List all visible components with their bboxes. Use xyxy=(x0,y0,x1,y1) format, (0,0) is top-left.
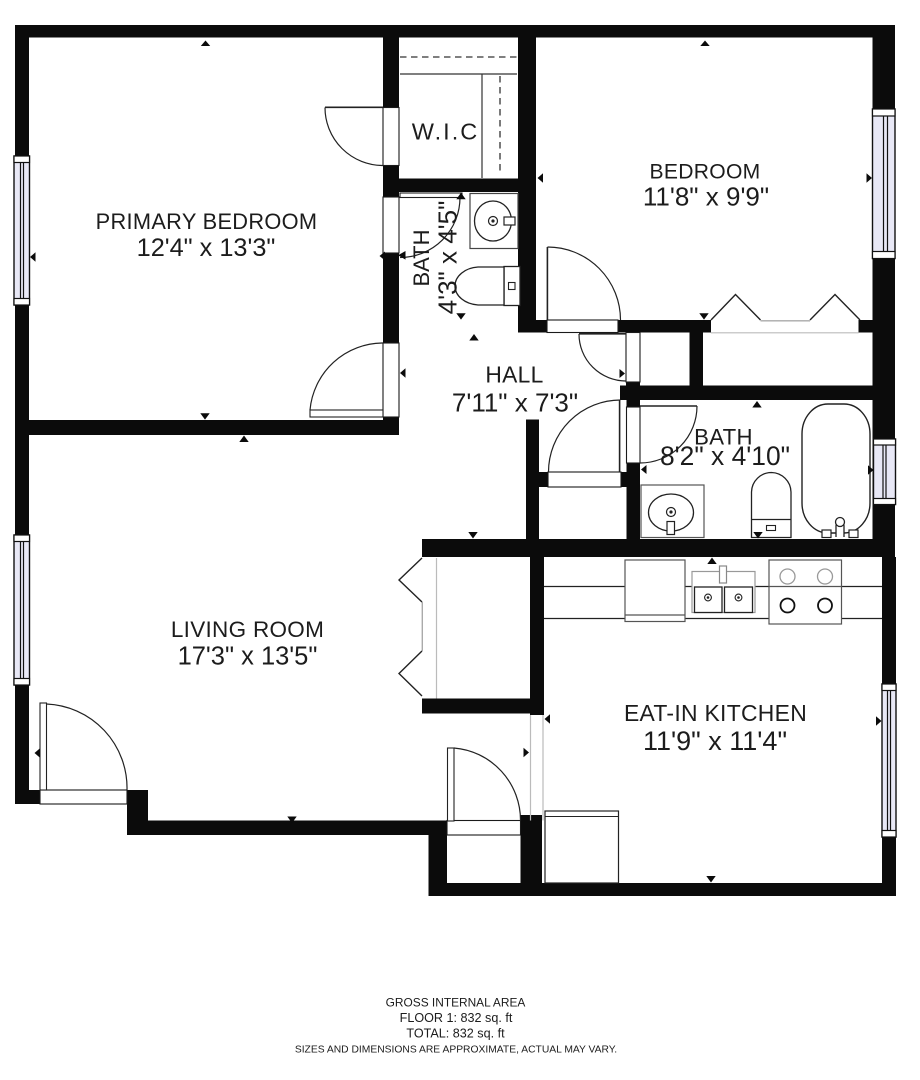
svg-text:4'3" x 4'5": 4'3" x 4'5" xyxy=(433,201,463,315)
svg-text:GROSS INTERNAL AREA: GROSS INTERNAL AREA xyxy=(386,996,526,1010)
svg-text:W.I.C: W.I.C xyxy=(412,119,479,145)
svg-text:HALL: HALL xyxy=(485,362,543,388)
svg-text:7'11" x 7'3": 7'11" x 7'3" xyxy=(452,388,578,418)
svg-text:17'3" x 13'5": 17'3" x 13'5" xyxy=(178,643,318,671)
svg-text:LIVING ROOM: LIVING ROOM xyxy=(171,617,324,642)
svg-text:FLOOR 1: 832 sq. ft: FLOOR 1: 832 sq. ft xyxy=(400,1011,513,1025)
svg-text:11'9" x 11'4": 11'9" x 11'4" xyxy=(643,726,787,756)
svg-text:BEDROOM: BEDROOM xyxy=(649,161,760,184)
svg-text:12'4" x 13'3": 12'4" x 13'3" xyxy=(137,234,276,262)
svg-text:8'2" x 4'10": 8'2" x 4'10" xyxy=(660,441,790,471)
svg-text:BATH: BATH xyxy=(409,229,434,286)
svg-text:EAT-IN KITCHEN: EAT-IN KITCHEN xyxy=(624,700,807,726)
svg-text:TOTAL: 832 sq. ft: TOTAL: 832 sq. ft xyxy=(406,1026,505,1040)
svg-text:SIZES AND DIMENSIONS ARE APPRO: SIZES AND DIMENSIONS ARE APPROXIMATE, AC… xyxy=(295,1045,617,1056)
svg-text:11'8" x 9'9": 11'8" x 9'9" xyxy=(643,182,769,212)
svg-text:PRIMARY BEDROOM: PRIMARY BEDROOM xyxy=(96,209,318,234)
